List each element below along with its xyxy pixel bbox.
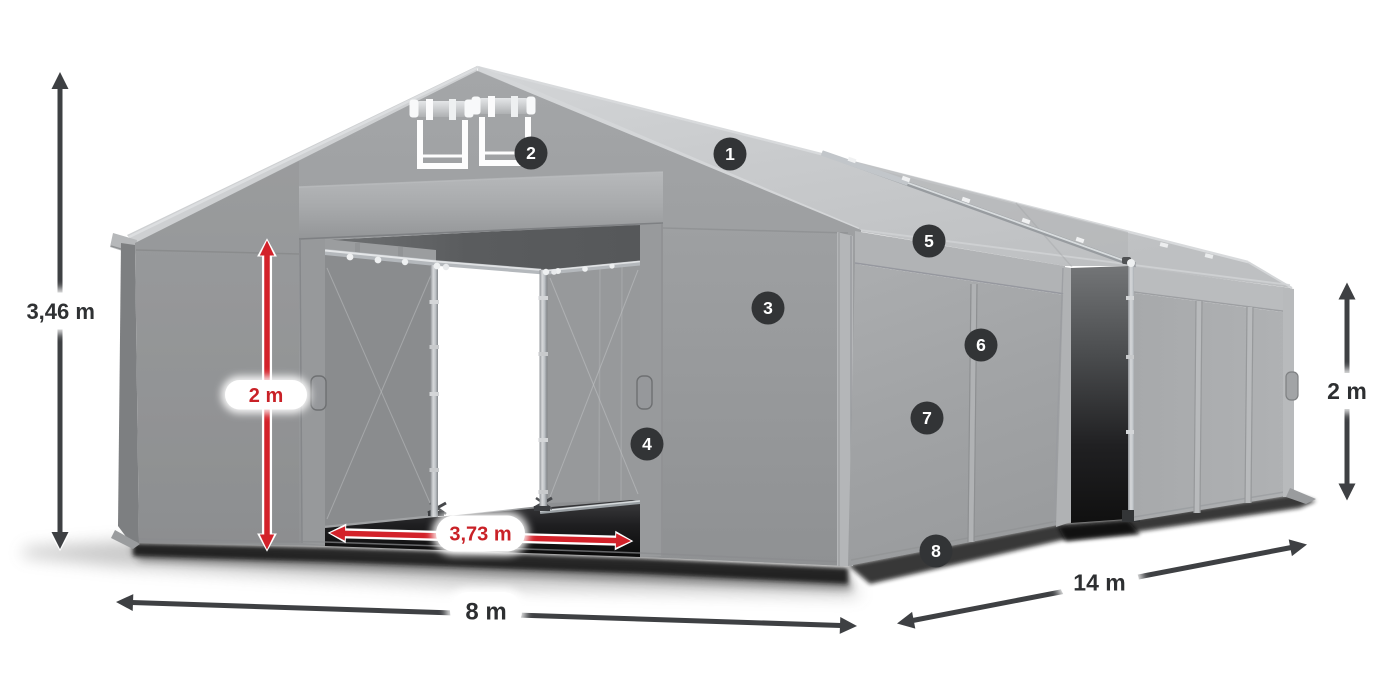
svg-text:5: 5 bbox=[924, 231, 934, 251]
svg-text:3: 3 bbox=[763, 298, 773, 318]
svg-text:3,46 m: 3,46 m bbox=[26, 299, 95, 324]
svg-text:1: 1 bbox=[725, 144, 735, 164]
svg-text:4: 4 bbox=[642, 434, 652, 454]
svg-text:8 m: 8 m bbox=[465, 599, 506, 626]
svg-text:2 m: 2 m bbox=[249, 385, 283, 407]
svg-text:2 m: 2 m bbox=[1327, 378, 1367, 404]
svg-text:2: 2 bbox=[526, 143, 536, 163]
svg-text:8: 8 bbox=[931, 541, 941, 561]
svg-text:3,73 m: 3,73 m bbox=[449, 524, 511, 546]
svg-text:14 m: 14 m bbox=[1073, 570, 1125, 596]
svg-text:6: 6 bbox=[976, 335, 986, 355]
svg-text:7: 7 bbox=[922, 408, 932, 428]
